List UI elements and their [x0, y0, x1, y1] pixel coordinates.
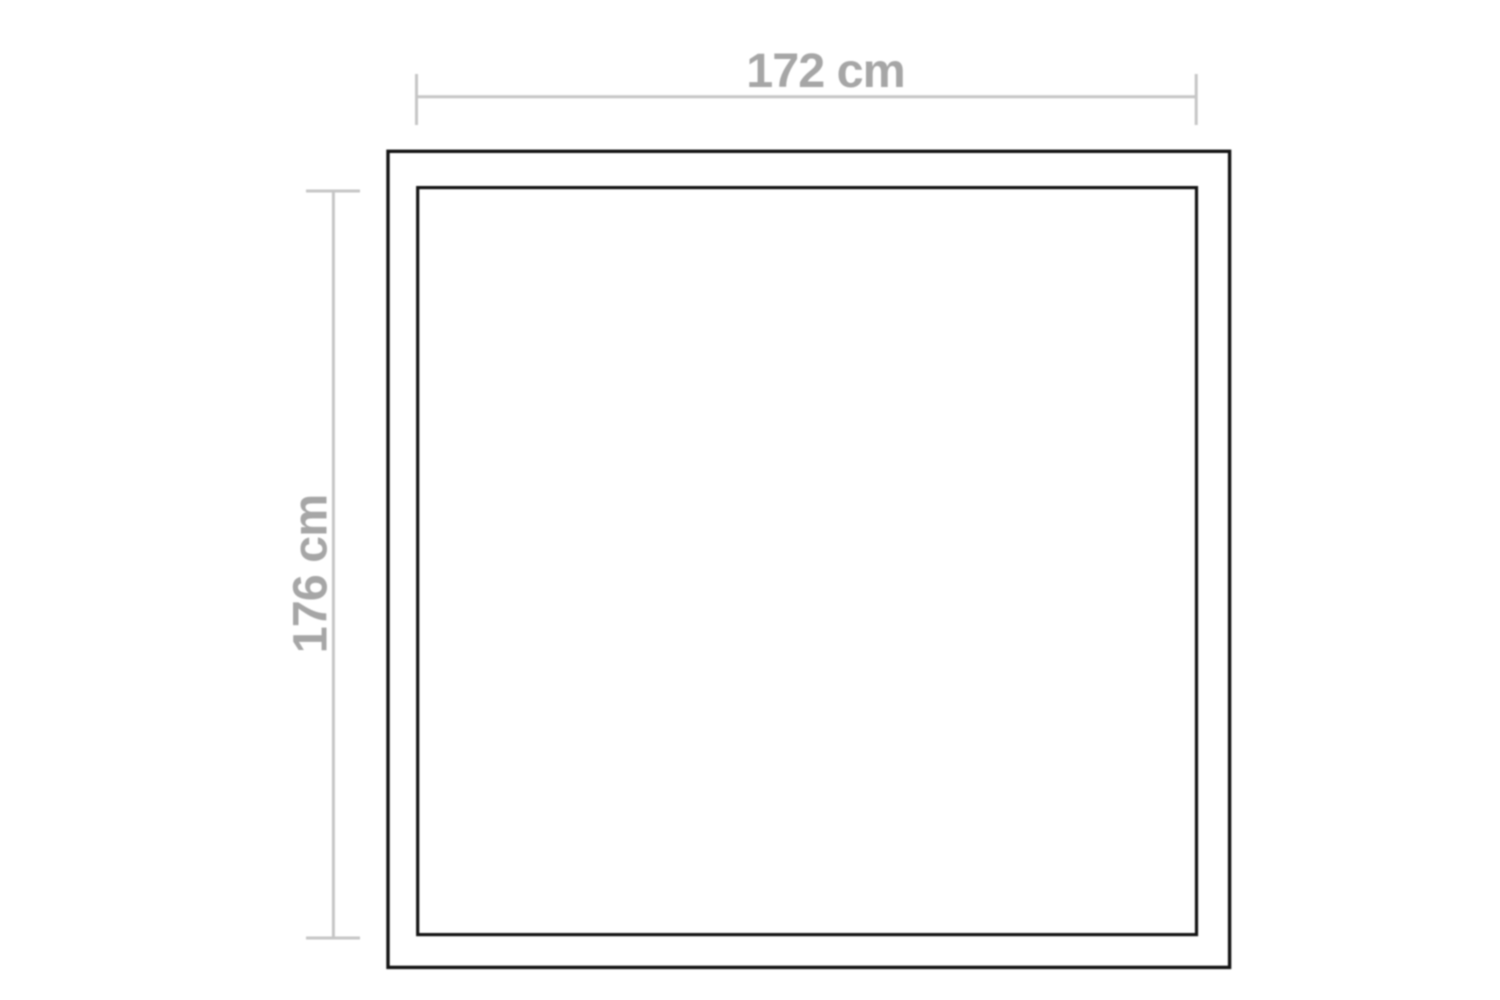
svg-text:176 cm: 176 cm: [284, 495, 338, 654]
svg-text:172 cm: 172 cm: [746, 44, 905, 98]
